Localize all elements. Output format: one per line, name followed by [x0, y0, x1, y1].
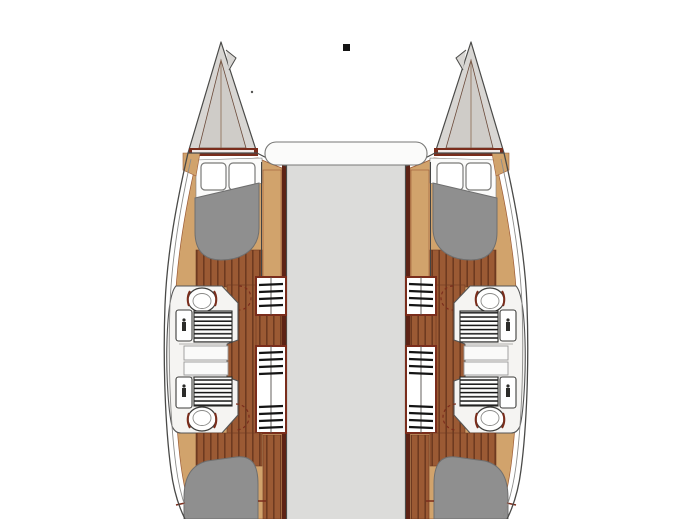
- mast-step-marker: [343, 44, 350, 51]
- catamaran-floor-plan: [0, 0, 692, 519]
- central-bridgedeck: [286, 162, 406, 519]
- print-speck: [251, 91, 253, 93]
- coachroof-front: [265, 142, 427, 165]
- starboard-hull: [406, 42, 528, 519]
- floor-plan-drawing: [0, 0, 692, 519]
- port-hull: [164, 42, 286, 519]
